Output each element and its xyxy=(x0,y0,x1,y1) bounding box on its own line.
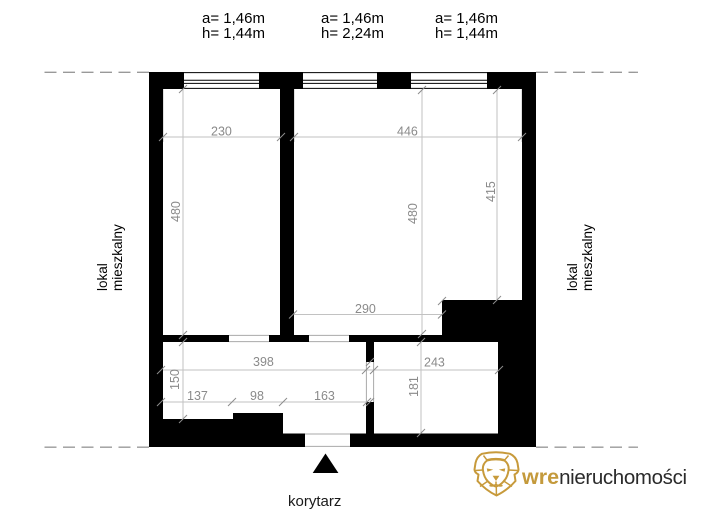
svg-text:h= 1,44m: h= 1,44m xyxy=(435,25,498,42)
svg-text:181: 181 xyxy=(407,376,421,397)
svg-text:mieszkalny: mieszkalny xyxy=(580,224,595,291)
svg-text:290: 290 xyxy=(355,302,376,316)
svg-text:wrenieruchomości: wrenieruchomości xyxy=(521,465,687,489)
svg-text:480: 480 xyxy=(406,203,420,224)
svg-text:398: 398 xyxy=(253,355,274,369)
svg-text:lokal: lokal xyxy=(565,263,580,291)
svg-text:137: 137 xyxy=(187,389,208,403)
svg-text:h= 1,44m: h= 1,44m xyxy=(202,25,265,42)
svg-text:h= 2,24m: h= 2,24m xyxy=(321,25,384,42)
svg-text:150: 150 xyxy=(168,369,182,390)
svg-text:mieszkalny: mieszkalny xyxy=(110,224,125,291)
svg-text:163: 163 xyxy=(314,389,335,403)
svg-text:446: 446 xyxy=(397,125,418,139)
svg-text:480: 480 xyxy=(169,201,183,222)
svg-text:korytarz: korytarz xyxy=(288,493,341,510)
svg-text:lokal: lokal xyxy=(95,263,110,291)
svg-text:98: 98 xyxy=(250,389,264,403)
svg-text:415: 415 xyxy=(484,181,498,202)
svg-text:243: 243 xyxy=(424,356,445,370)
svg-text:230: 230 xyxy=(211,125,232,139)
